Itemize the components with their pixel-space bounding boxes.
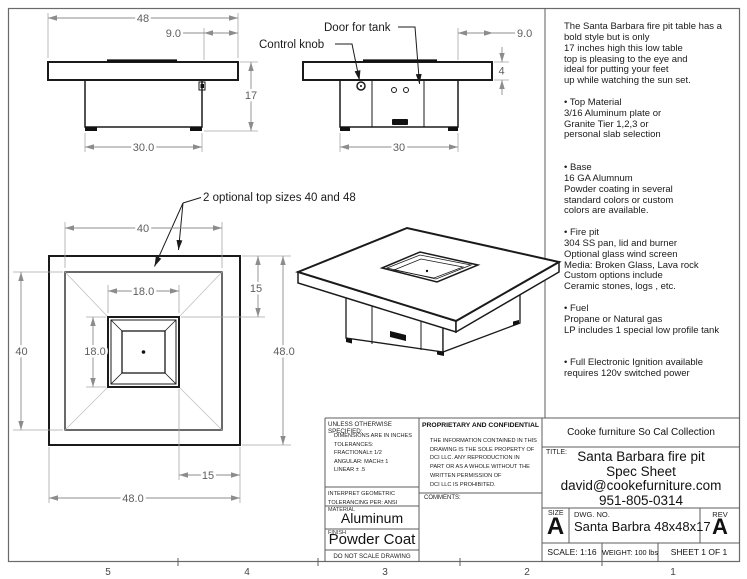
rev-value: A (700, 514, 740, 540)
drawing-sheet: 5 4 3 2 1 48 9.0 17 30.0 (0, 0, 747, 579)
dwg-no-value: Santa Barbra 48x48x17 (574, 519, 711, 534)
comments-label: COMMENTS: (424, 495, 461, 501)
proprietary-text: THE INFORMATION CONTAINED IN THIS DRAWIN… (430, 437, 540, 489)
company-name: Cooke furniture So Cal Collection (542, 418, 740, 447)
proprietary-header: PROPRIETARY AND CONFIDENTIAL (419, 422, 542, 429)
sheet-value: SHEET 1 OF 1 (658, 543, 740, 562)
dwg-no-label: DWG. NO. (574, 510, 610, 519)
weight-value: WEIGHT: 100 lbs (602, 543, 658, 562)
no-scale-note: DO NOT SCALE DRAWING (325, 553, 419, 560)
interpret-note: INTERPRET GEOMETRIC TOLERANCING PER: ANS… (328, 490, 418, 507)
tolerance-notes: DIMENSIONS ARE IN INCHES TOLERANCES: FRA… (334, 432, 418, 475)
size-value: A (542, 513, 569, 541)
material-value: Aluminum (325, 510, 419, 526)
scale-value: SCALE: 1:16 (542, 543, 602, 562)
finish-value: Powder Coat (325, 531, 419, 548)
drawing-title: Santa Barbara fire pit Spec Sheet david@… (542, 450, 740, 508)
